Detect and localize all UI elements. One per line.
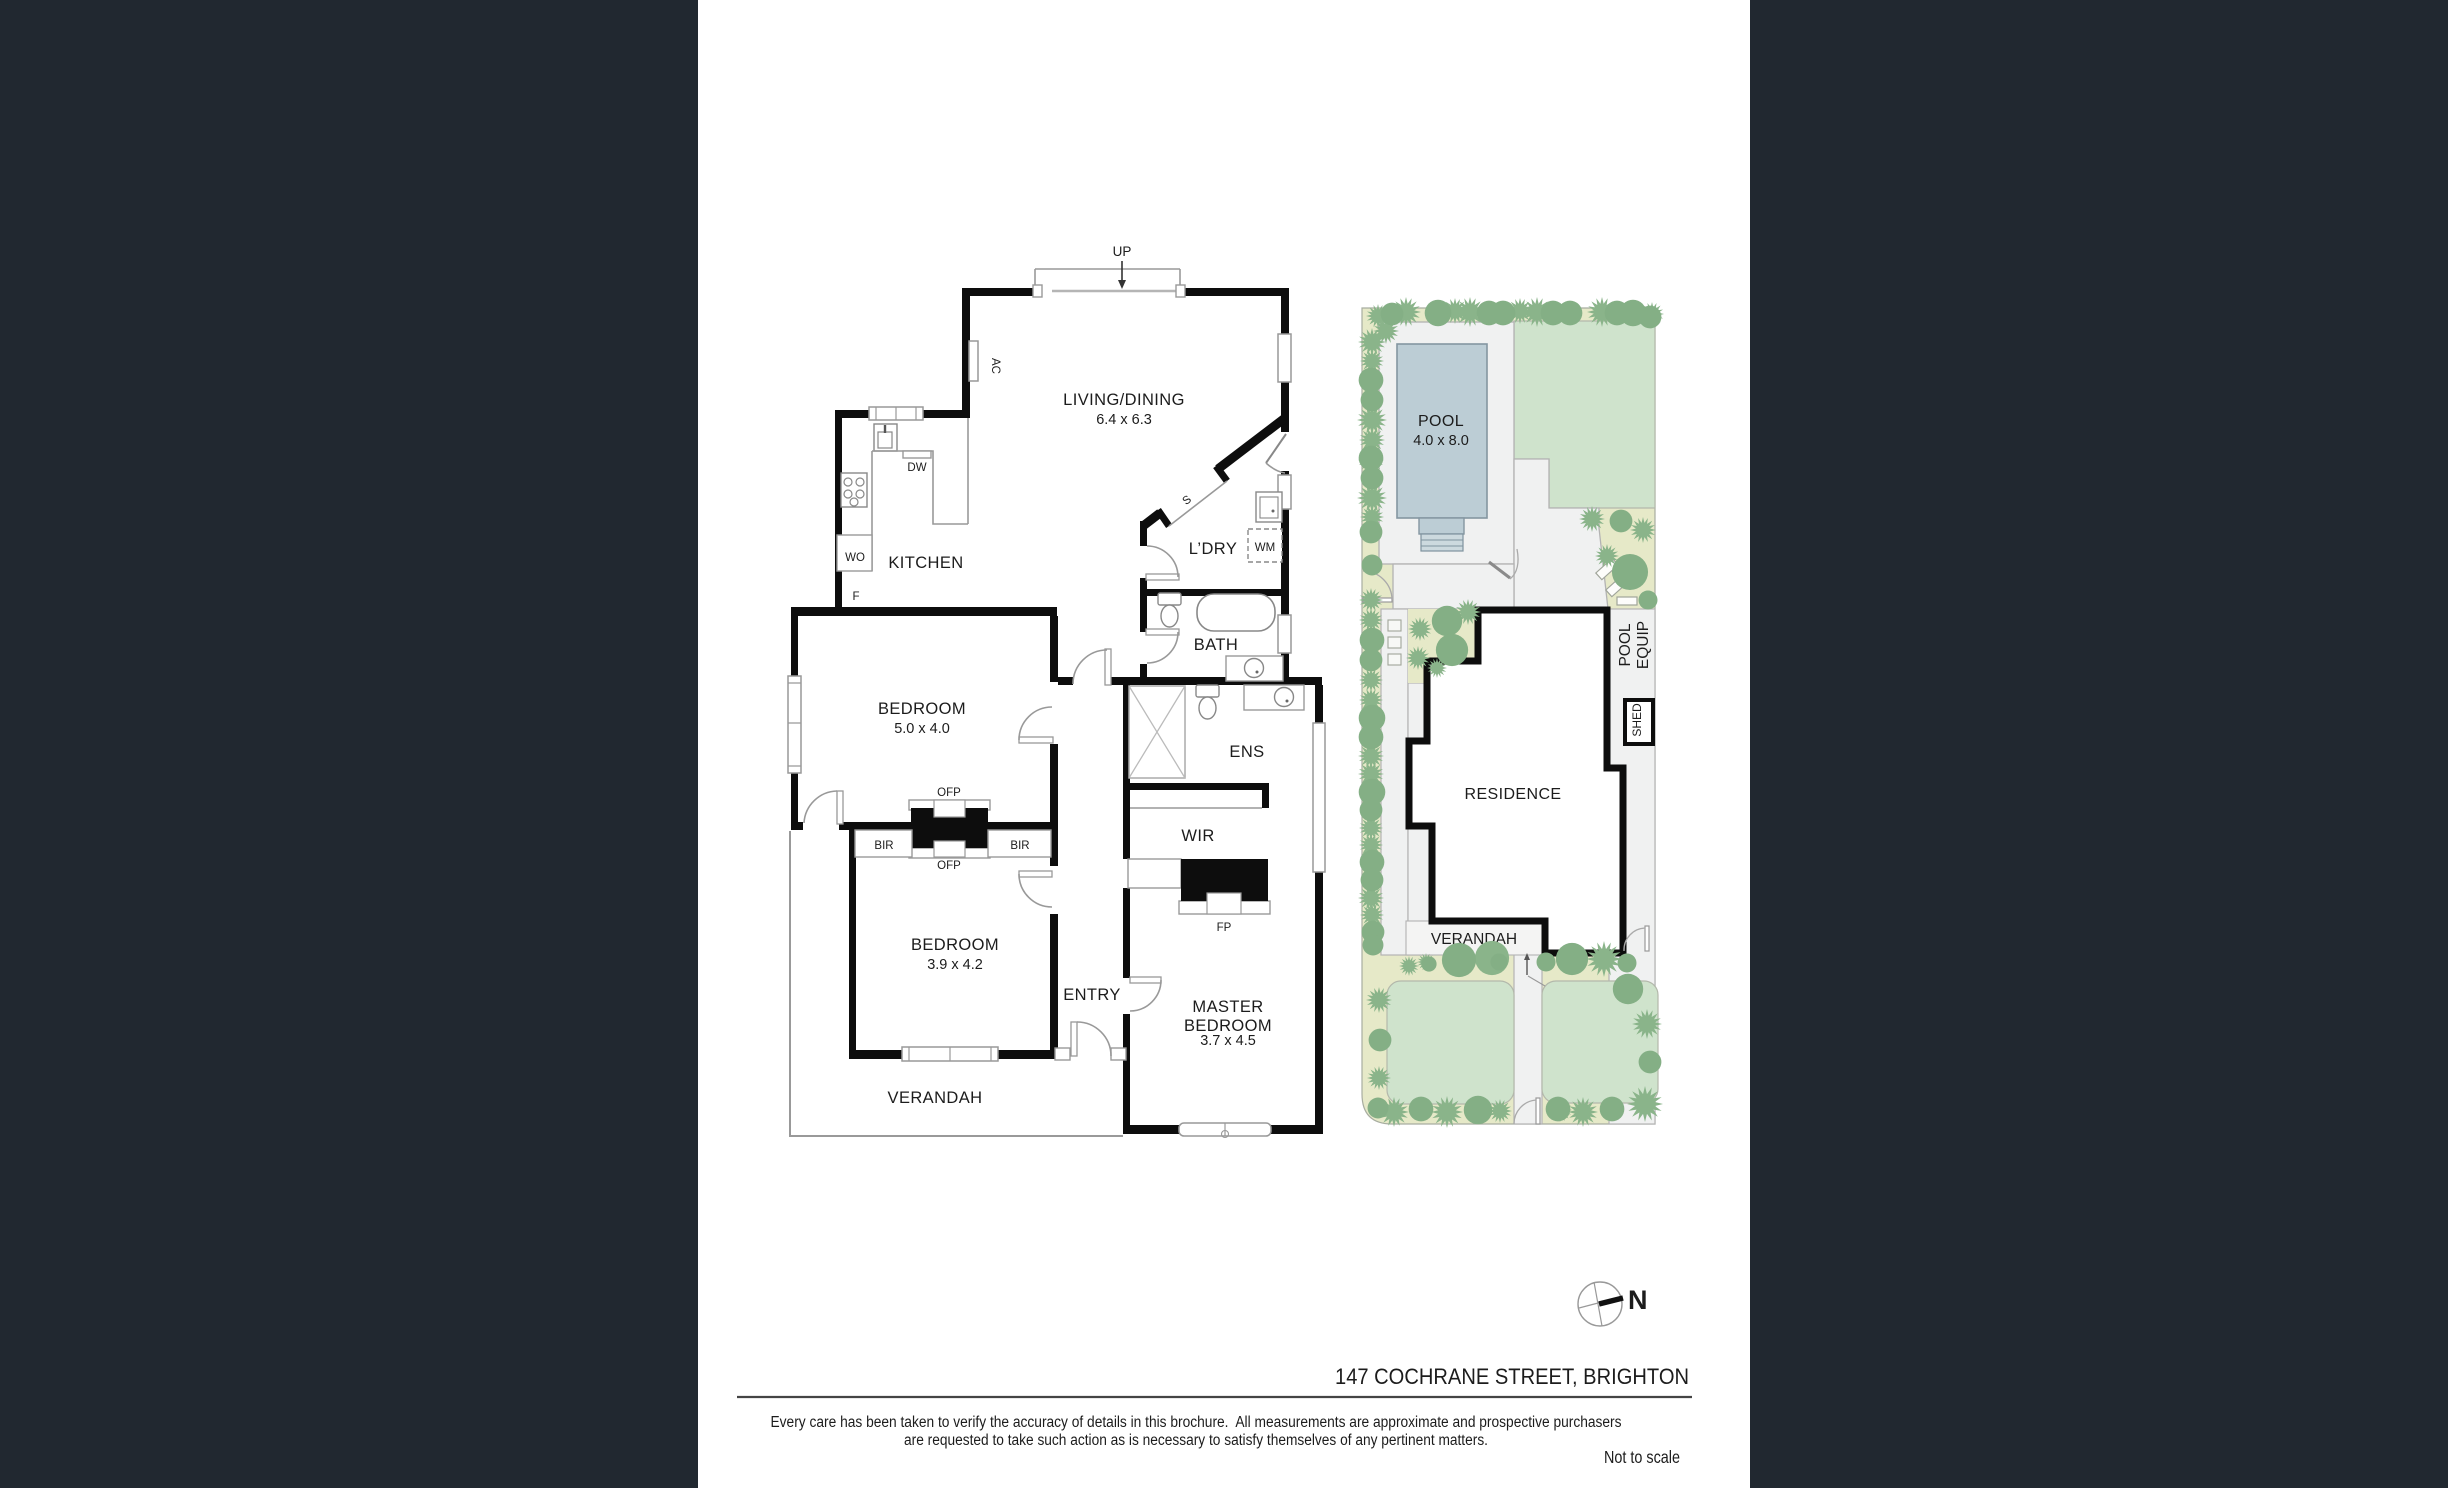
svg-text:RESIDENCE: RESIDENCE xyxy=(1465,786,1562,803)
svg-text:VERANDAH: VERANDAH xyxy=(1431,931,1517,948)
svg-text:5.0 x 4.0: 5.0 x 4.0 xyxy=(894,721,950,737)
svg-text:are requested to take such act: are requested to take such action as is … xyxy=(904,1432,1488,1449)
svg-text:Not to scale: Not to scale xyxy=(1604,1447,1680,1467)
svg-text:POOL: POOL xyxy=(1617,623,1634,666)
svg-text:3.7 x 4.5: 3.7 x 4.5 xyxy=(1200,1033,1256,1049)
svg-text:AC: AC xyxy=(989,358,1001,374)
svg-text:OFP: OFP xyxy=(937,787,961,799)
svg-text:KITCHEN: KITCHEN xyxy=(888,554,963,572)
svg-text:BEDROOM: BEDROOM xyxy=(911,936,999,954)
svg-text:ENS: ENS xyxy=(1229,743,1264,761)
svg-text:L’DRY: L’DRY xyxy=(1189,540,1237,558)
svg-text:F: F xyxy=(852,591,859,603)
svg-text:147 COCHRANE STREET, BRIGHTON: 147 COCHRANE STREET, BRIGHTON xyxy=(1335,1364,1689,1389)
svg-text:3.9 x 4.2: 3.9 x 4.2 xyxy=(927,957,983,973)
svg-text:DW: DW xyxy=(907,462,926,474)
svg-text:WM: WM xyxy=(1255,542,1275,554)
svg-text:WIR: WIR xyxy=(1181,827,1214,845)
svg-text:WO: WO xyxy=(845,552,865,564)
svg-text:BATH: BATH xyxy=(1194,636,1238,654)
svg-text:UP: UP xyxy=(1113,244,1132,259)
svg-text:BIR: BIR xyxy=(874,840,893,852)
svg-text:ENTRY: ENTRY xyxy=(1063,986,1121,1004)
svg-text:MASTER: MASTER xyxy=(1192,998,1263,1016)
svg-text:EQUIP: EQUIP xyxy=(1635,621,1652,669)
svg-text:POOL: POOL xyxy=(1418,413,1464,430)
svg-text:VERANDAH: VERANDAH xyxy=(888,1089,983,1107)
svg-text:BIR: BIR xyxy=(1010,840,1029,852)
svg-text:OFP: OFP xyxy=(937,860,961,872)
svg-text:N: N xyxy=(1628,1285,1648,1315)
svg-text:FP: FP xyxy=(1217,922,1232,934)
svg-text:6.4 x 6.3: 6.4 x 6.3 xyxy=(1096,412,1152,428)
svg-text:SHED: SHED xyxy=(1630,703,1644,737)
svg-text:LIVING/DINING: LIVING/DINING xyxy=(1063,391,1185,409)
svg-text:4.0 x 8.0: 4.0 x 8.0 xyxy=(1413,433,1469,449)
svg-text:Every care has been taken to v: Every care has been taken to verify the … xyxy=(771,1414,1622,1431)
svg-text:BEDROOM: BEDROOM xyxy=(878,700,966,718)
